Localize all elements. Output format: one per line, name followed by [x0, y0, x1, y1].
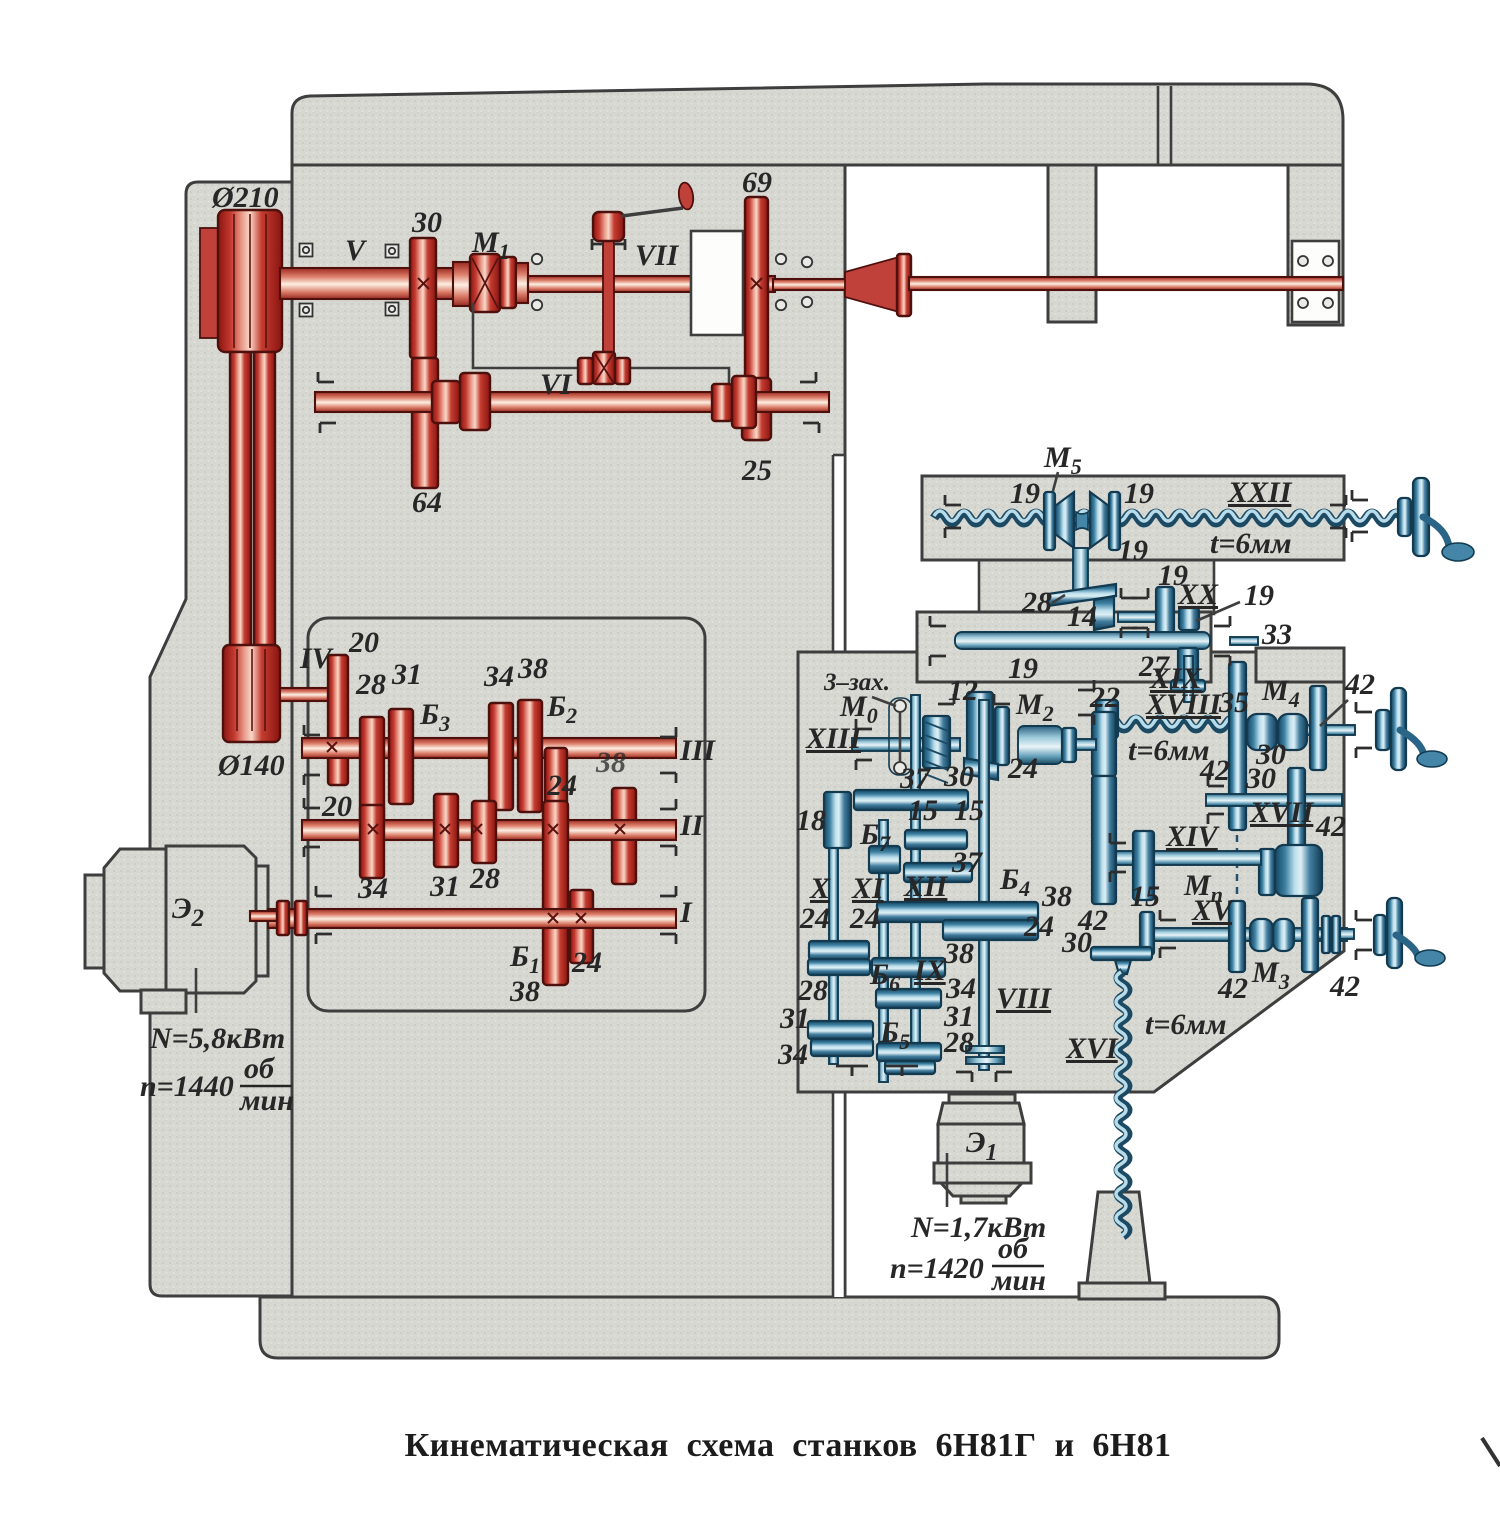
svg-text:37: 37	[951, 846, 983, 879]
svg-text:XVIII: XVIII	[1145, 688, 1222, 721]
svg-text:25: 25	[741, 454, 772, 487]
svg-text:15: 15	[954, 794, 984, 827]
svg-text:34: 34	[777, 1038, 808, 1071]
svg-text:30: 30	[1245, 762, 1276, 795]
svg-text:15: 15	[1130, 880, 1160, 913]
svg-text:33: 33	[1261, 618, 1292, 651]
svg-text:V: V	[345, 234, 368, 267]
svg-text:38: 38	[943, 937, 974, 970]
svg-text:об: об	[244, 1052, 275, 1085]
svg-text:XV: XV	[1191, 894, 1235, 927]
svg-text:24: 24	[1007, 752, 1038, 785]
svg-text:15: 15	[908, 794, 938, 827]
svg-text:38: 38	[1041, 880, 1072, 913]
svg-text:34: 34	[357, 872, 388, 905]
svg-text:24: 24	[1023, 910, 1054, 943]
svg-text:12: 12	[948, 674, 978, 707]
svg-text:42: 42	[1217, 972, 1248, 1005]
svg-text:19: 19	[1008, 652, 1038, 685]
svg-text:об: об	[998, 1232, 1029, 1265]
svg-text:n=1420: n=1420	[890, 1252, 984, 1285]
svg-text:28: 28	[943, 1026, 974, 1059]
svg-text:XVII: XVII	[1249, 796, 1315, 829]
svg-text:19: 19	[1010, 477, 1040, 510]
svg-text:IX: IX	[913, 954, 947, 987]
svg-text:N=5,8кВт: N=5,8кВт	[149, 1022, 285, 1055]
svg-text:30: 30	[943, 760, 974, 793]
svg-text:VIII: VIII	[996, 982, 1052, 1015]
svg-text:20: 20	[321, 790, 352, 823]
svg-text:38: 38	[595, 746, 626, 779]
svg-text:37: 37	[899, 762, 931, 795]
svg-text:24: 24	[849, 902, 880, 935]
svg-text:мин: мин	[990, 1264, 1046, 1297]
svg-text:35: 35	[1218, 686, 1249, 719]
svg-text:34: 34	[483, 660, 514, 693]
svg-text:19: 19	[1244, 579, 1274, 612]
svg-text:30: 30	[1061, 926, 1092, 959]
svg-text:t=6мм: t=6мм	[1128, 734, 1210, 767]
svg-text:19: 19	[1118, 534, 1148, 567]
svg-text:X: X	[809, 872, 831, 905]
svg-text:XX: XX	[1177, 578, 1219, 611]
svg-text:22: 22	[1089, 681, 1120, 714]
svg-text:Ø140: Ø140	[217, 749, 285, 782]
svg-text:69: 69	[742, 166, 772, 199]
svg-text:t=6мм: t=6мм	[1210, 527, 1292, 560]
svg-text:I: I	[679, 896, 693, 929]
svg-text:42: 42	[1315, 810, 1346, 843]
svg-text:64: 64	[412, 486, 442, 519]
svg-text:42: 42	[1329, 970, 1360, 1003]
svg-text:20: 20	[348, 626, 379, 659]
svg-text:мин: мин	[238, 1084, 294, 1117]
svg-text:IV: IV	[299, 642, 335, 675]
svg-text:42: 42	[1344, 668, 1375, 701]
svg-text:28: 28	[355, 668, 386, 701]
svg-text:Ø210: Ø210	[211, 181, 279, 214]
svg-text:31: 31	[429, 870, 460, 903]
svg-text:XIV: XIV	[1165, 820, 1221, 853]
svg-text:n=1440: n=1440	[140, 1070, 234, 1103]
svg-text:VI: VI	[540, 368, 573, 401]
svg-text:24: 24	[546, 769, 577, 802]
svg-text:XII: XII	[903, 870, 949, 903]
svg-text:28: 28	[469, 862, 500, 895]
svg-text:38: 38	[509, 975, 540, 1008]
svg-text:24: 24	[571, 946, 602, 979]
svg-text:31: 31	[779, 1002, 810, 1035]
svg-text:XIII: XIII	[805, 722, 862, 755]
svg-text:XXII: XXII	[1227, 476, 1293, 509]
svg-text:18: 18	[796, 804, 826, 837]
svg-text:t=6мм: t=6мм	[1145, 1008, 1227, 1041]
svg-text:14: 14	[1067, 600, 1097, 633]
svg-text:II: II	[679, 809, 705, 842]
svg-text:VII: VII	[635, 239, 680, 272]
svg-text:31: 31	[391, 658, 422, 691]
svg-text:28: 28	[1021, 586, 1052, 619]
svg-text:42: 42	[1199, 754, 1230, 787]
svg-text:XI: XI	[851, 872, 885, 905]
svg-text:XVI: XVI	[1065, 1032, 1119, 1065]
svg-text:30: 30	[411, 206, 442, 239]
svg-text:38: 38	[517, 652, 548, 685]
svg-text:24: 24	[799, 902, 830, 935]
svg-text:Кинематическая схема станков 6: Кинематическая схема станков 6Н81Г и 6Н8…	[405, 1427, 1172, 1464]
svg-text:19: 19	[1124, 477, 1154, 510]
svg-text:III: III	[679, 734, 716, 767]
